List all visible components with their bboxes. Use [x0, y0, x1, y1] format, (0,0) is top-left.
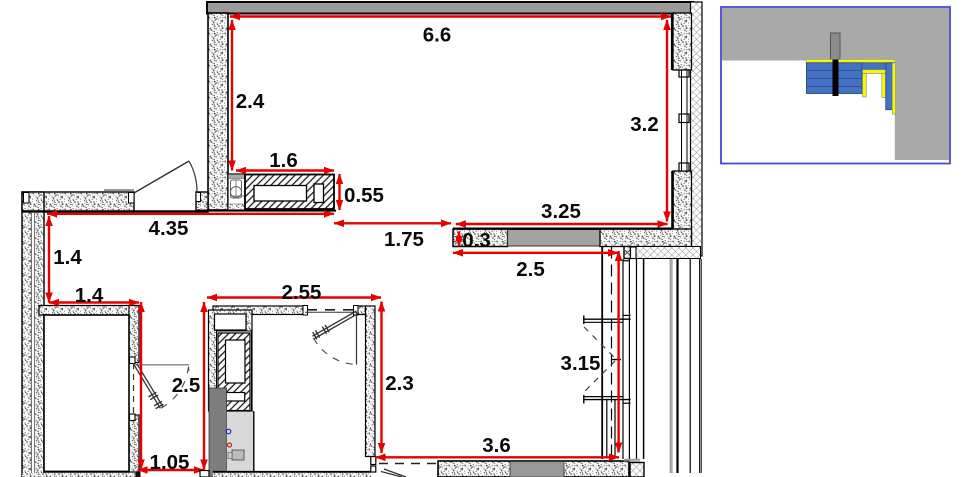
svg-text:1.4: 1.4 [53, 246, 82, 269]
svg-text:1.75: 1.75 [384, 228, 424, 251]
svg-text:3.6: 3.6 [482, 434, 511, 457]
svg-text:6.6: 6.6 [423, 24, 452, 47]
svg-text:4.35: 4.35 [149, 217, 189, 240]
svg-text:1.4: 1.4 [75, 284, 104, 307]
svg-text:0.3: 0.3 [462, 229, 491, 252]
svg-text:2.5: 2.5 [172, 374, 201, 397]
svg-text:2.4: 2.4 [236, 90, 265, 113]
svg-text:2.3: 2.3 [385, 372, 414, 395]
svg-text:0.55: 0.55 [344, 184, 384, 207]
svg-text:2.55: 2.55 [282, 281, 322, 304]
svg-text:3.2: 3.2 [630, 113, 659, 136]
svg-text:1.05: 1.05 [150, 451, 190, 474]
svg-text:3.25: 3.25 [541, 200, 581, 223]
svg-text:1.6: 1.6 [269, 149, 298, 172]
svg-text:3.15: 3.15 [561, 352, 601, 375]
svg-text:2.5: 2.5 [516, 258, 545, 281]
